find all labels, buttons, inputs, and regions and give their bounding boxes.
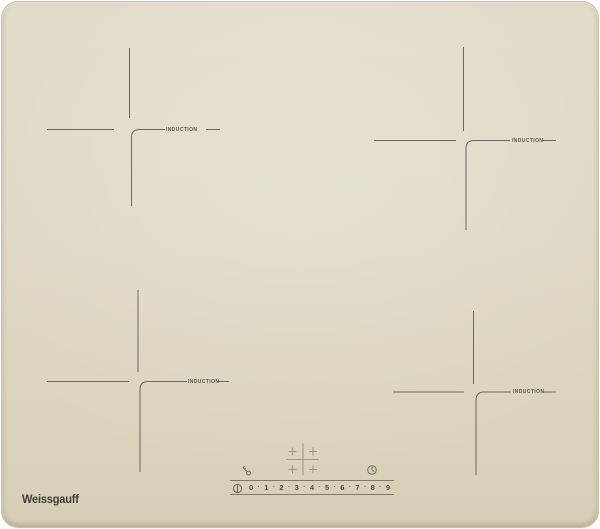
- power-level-8[interactable]: 8: [371, 481, 375, 494]
- level-separator: ·: [258, 481, 260, 494]
- product-photo: INDUCTION INDUCTION INDUCTION INDUCTION: [0, 0, 600, 529]
- standby-power-icon[interactable]: [232, 483, 243, 494]
- level-separator: ·: [334, 481, 336, 494]
- zone-selector-grid-icon[interactable]: [285, 442, 321, 483]
- power-level-0[interactable]: 0: [249, 481, 253, 494]
- power-level-1[interactable]: 1: [264, 481, 268, 494]
- plus-top-right: [309, 448, 317, 456]
- power-level-6[interactable]: 6: [340, 481, 344, 494]
- zone-label-bottom-right: INDUCTION: [513, 389, 544, 395]
- level-separator: ·: [318, 481, 320, 494]
- level-separator: ·: [379, 481, 381, 494]
- power-level-4[interactable]: 4: [310, 481, 314, 494]
- level-separator: ·: [273, 481, 275, 494]
- level-separator: ·: [288, 481, 290, 494]
- power-level-9[interactable]: 9: [386, 481, 390, 494]
- plus-bottom-right: [309, 466, 317, 474]
- zone-label-bottom-left: INDUCTION: [188, 379, 219, 385]
- power-level-slider[interactable]: 0 · 1 · 2 · 3 · 4 · 5 · 6 · 7 · 8 · 9: [230, 480, 394, 495]
- zone-label-top-left: INDUCTION: [166, 127, 197, 133]
- level-separator: ·: [349, 481, 351, 494]
- power-level-3[interactable]: 3: [295, 481, 299, 494]
- zone-label-top-right: INDUCTION: [512, 138, 543, 144]
- power-level-scale[interactable]: 0 · 1 · 2 · 3 · 4 · 5 · 6 · 7 · 8 · 9: [249, 481, 390, 494]
- brand-logo: Weissgauff: [22, 494, 79, 506]
- power-level-7[interactable]: 7: [355, 481, 359, 494]
- induction-hob-surface: INDUCTION INDUCTION INDUCTION INDUCTION: [1, 1, 599, 528]
- level-separator: ·: [364, 481, 366, 494]
- plus-top-left: [289, 448, 297, 456]
- plus-bottom-left: [289, 466, 297, 474]
- level-separator: ·: [303, 481, 305, 494]
- power-level-5[interactable]: 5: [325, 481, 329, 494]
- power-level-2[interactable]: 2: [279, 481, 283, 494]
